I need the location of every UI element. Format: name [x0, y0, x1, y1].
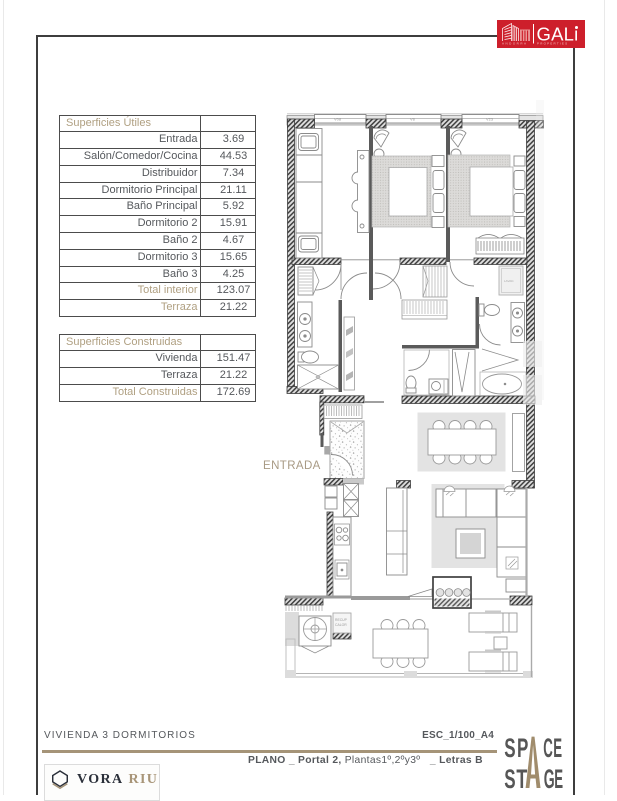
svg-text:RECUP: RECUP: [335, 618, 348, 622]
svg-text:P: P: [517, 736, 528, 763]
svg-text:C: C: [543, 736, 553, 763]
svg-text:V08: V08: [334, 117, 342, 122]
svg-text:S: S: [504, 764, 515, 794]
svg-text:E: E: [554, 764, 563, 794]
svg-text:CALOR: CALOR: [335, 623, 347, 627]
svg-text:E: E: [553, 736, 562, 763]
svg-text:T: T: [516, 763, 527, 794]
svg-text:V23: V23: [486, 117, 494, 122]
svg-text:G: G: [544, 764, 555, 794]
svg-text:V8: V8: [410, 117, 416, 122]
svg-text:LAVAD.: LAVAD.: [504, 279, 514, 283]
svg-text:S: S: [504, 736, 515, 763]
